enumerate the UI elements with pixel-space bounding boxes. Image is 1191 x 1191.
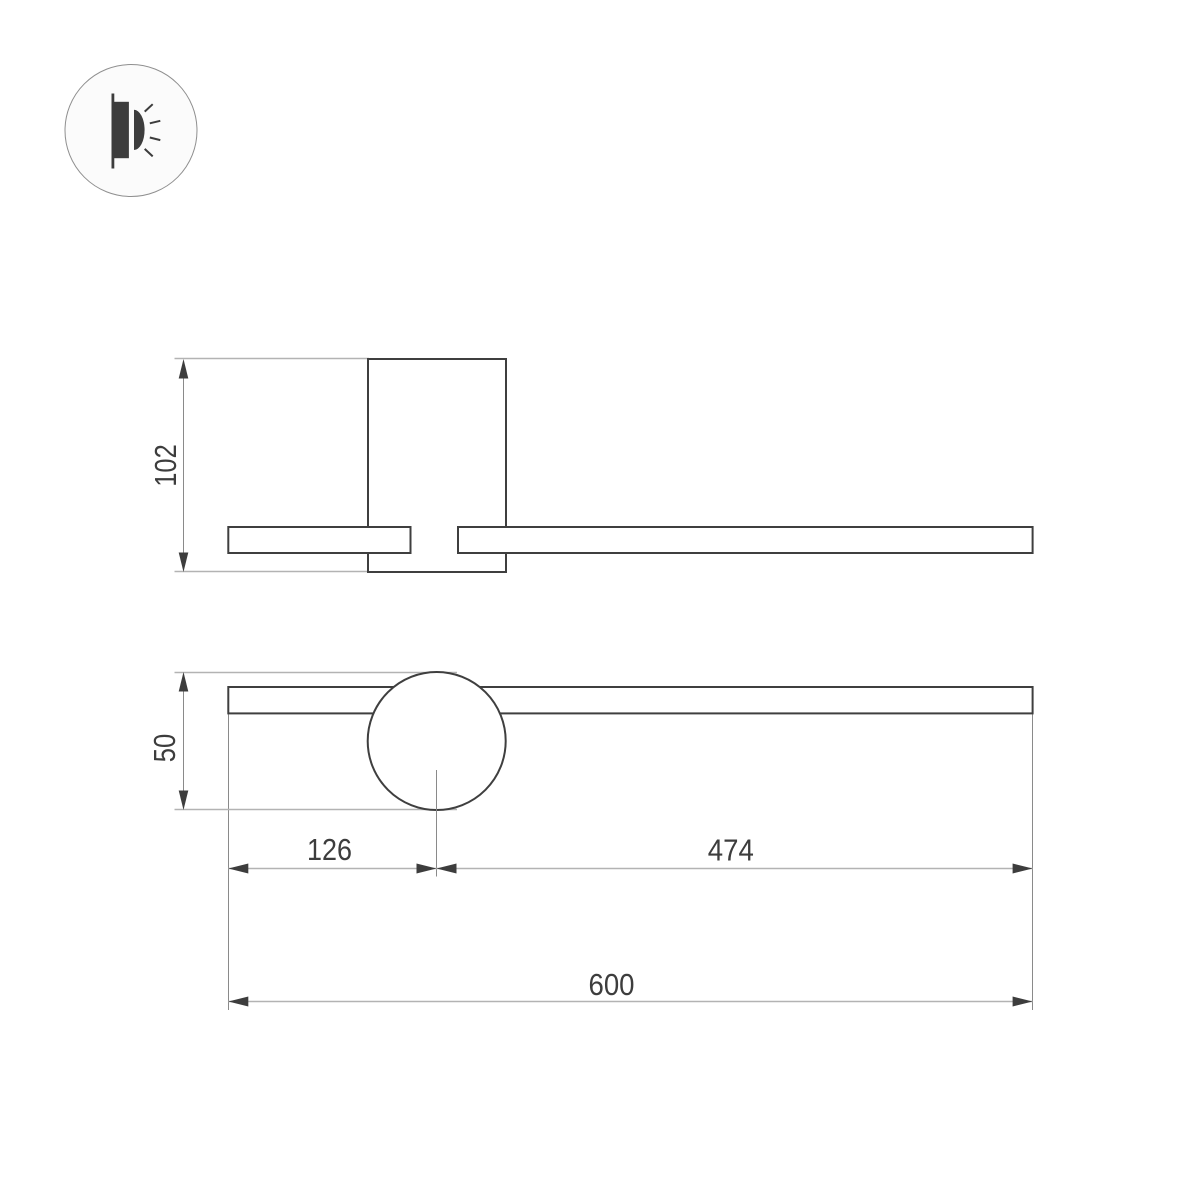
svg-text:600: 600 <box>589 969 635 1002</box>
svg-text:50: 50 <box>149 734 182 763</box>
svg-text:126: 126 <box>307 834 352 867</box>
svg-text:474: 474 <box>708 835 754 868</box>
svg-text:102: 102 <box>150 444 183 487</box>
